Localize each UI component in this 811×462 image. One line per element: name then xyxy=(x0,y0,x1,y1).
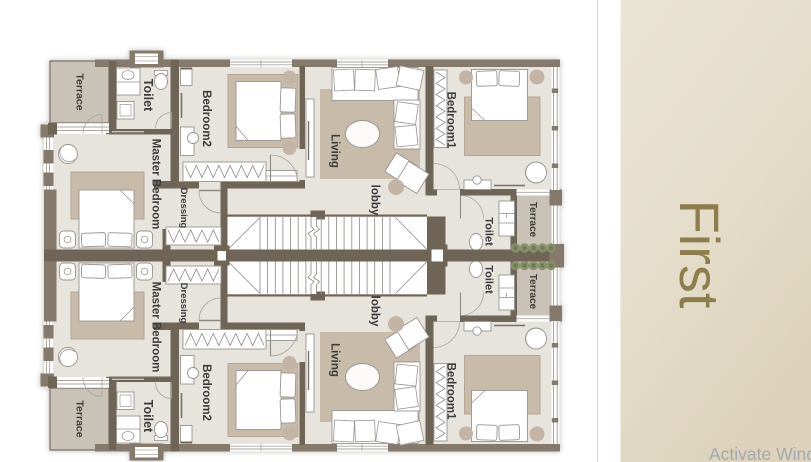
svg-text:Bedroom1: Bedroom1 xyxy=(444,92,456,149)
svg-text:Living: Living xyxy=(328,343,340,377)
svg-text:Bedroom2: Bedroom2 xyxy=(200,90,212,147)
svg-text:Living: Living xyxy=(328,134,340,168)
svg-text:Activate Wind: Activate Wind xyxy=(709,444,811,462)
svg-text:Master Bedroom: Master Bedroom xyxy=(149,139,161,230)
svg-text:Terrace: Terrace xyxy=(74,400,86,437)
svg-text:Master Bedroom: Master Bedroom xyxy=(149,282,161,373)
svg-text:lobby: lobby xyxy=(368,296,380,327)
svg-text:Terrace: Terrace xyxy=(527,274,538,310)
svg-text:Toilet: Toilet xyxy=(141,400,155,433)
svg-text:Toilet: Toilet xyxy=(483,217,495,246)
svg-text:Terrace: Terrace xyxy=(527,202,538,238)
svg-text:Dressing: Dressing xyxy=(178,188,189,229)
svg-text:Dressing: Dressing xyxy=(178,283,189,324)
svg-text:lobby: lobby xyxy=(368,185,380,216)
svg-text:Bedroom2: Bedroom2 xyxy=(200,364,212,421)
svg-text:Bedroom1: Bedroom1 xyxy=(444,363,456,420)
svg-text:First: First xyxy=(668,200,731,309)
svg-text:Terrace: Terrace xyxy=(74,73,86,110)
svg-text:Toilet: Toilet xyxy=(483,265,495,294)
svg-text:Toilet: Toilet xyxy=(141,79,155,112)
